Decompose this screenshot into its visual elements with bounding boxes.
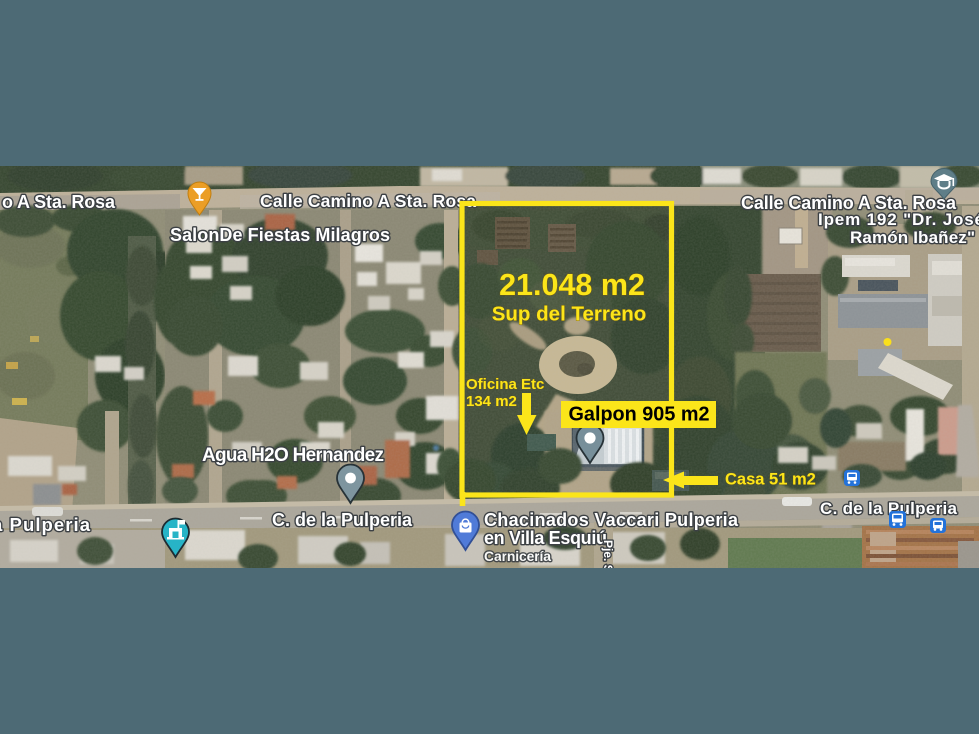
svg-text:Casa 51 m2: Casa 51 m2 bbox=[725, 471, 816, 489]
svg-text:a Pulperia: a Pulperia bbox=[0, 514, 91, 535]
svg-text:Ipem 192 "Dr. José: Ipem 192 "Dr. José bbox=[818, 210, 979, 229]
svg-text:134 m2: 134 m2 bbox=[466, 393, 517, 410]
svg-text:Pje. S: Pje. S bbox=[601, 540, 615, 568]
svg-text:21.048 m2: 21.048 m2 bbox=[499, 268, 645, 302]
svg-text:Chacinados Vaccari Pulperia: Chacinados Vaccari Pulperia bbox=[484, 510, 739, 530]
svg-text:Sup del Terreno: Sup del Terreno bbox=[492, 303, 647, 326]
svg-text:SalonDe Fiestas Milagros: SalonDe Fiestas Milagros bbox=[170, 225, 390, 245]
svg-text:Oficina Etc: Oficina Etc bbox=[466, 376, 544, 393]
svg-text:Ramón Ibañez": Ramón Ibañez" bbox=[850, 228, 975, 247]
svg-text:Galpon 905 m2: Galpon 905 m2 bbox=[569, 404, 710, 426]
svg-text:C. de la Pulperia: C. de la Pulperia bbox=[820, 499, 958, 518]
svg-text:o A Sta. Rosa: o A Sta. Rosa bbox=[2, 192, 116, 212]
svg-text:C. de la Pulperia: C. de la Pulperia bbox=[272, 510, 413, 530]
svg-text:en Villa Esquiú: en Villa Esquiú bbox=[484, 528, 607, 548]
svg-text:Carnicería: Carnicería bbox=[484, 548, 551, 564]
svg-text:Calle Camino A Sta. Rosa: Calle Camino A Sta. Rosa bbox=[260, 191, 476, 211]
svg-text:Agua H2O Hernandez: Agua H2O Hernandez bbox=[202, 445, 384, 466]
